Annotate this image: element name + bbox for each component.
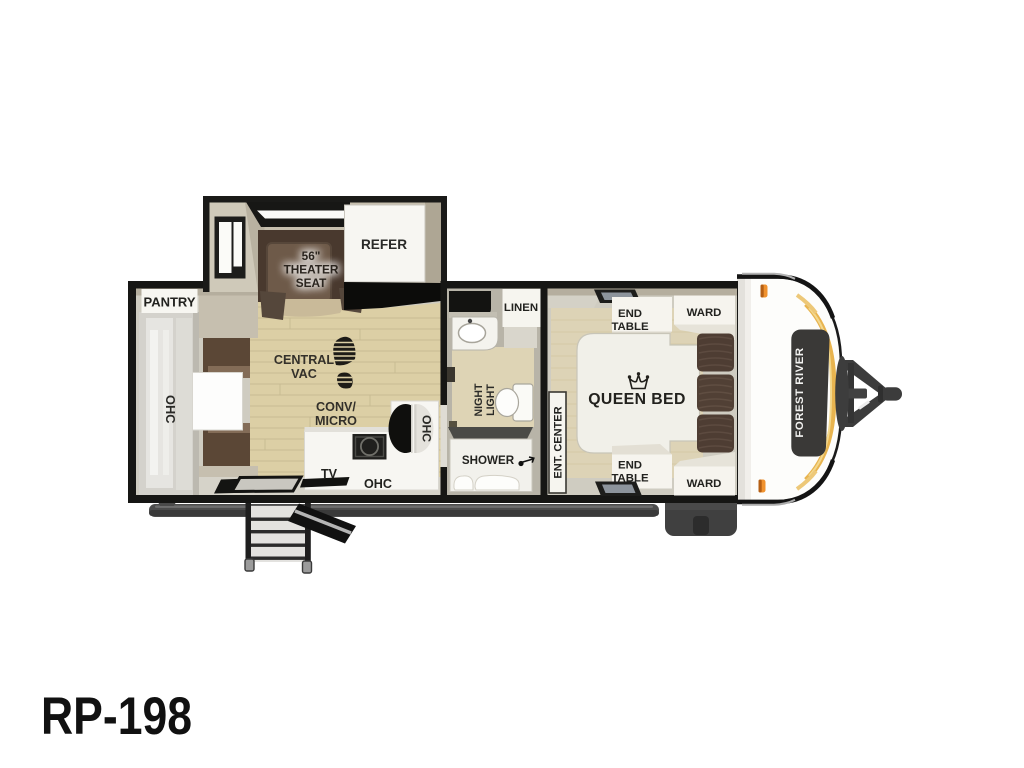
svg-text:SHOWER: SHOWER — [462, 454, 515, 467]
svg-text:TABLE: TABLE — [611, 321, 649, 333]
svg-text:QUEEN BED: QUEEN BED — [588, 391, 686, 408]
svg-text:PANTRY: PANTRY — [144, 295, 196, 310]
svg-text:THEATER: THEATER — [284, 263, 339, 277]
svg-text:OHC: OHC — [163, 395, 178, 423]
svg-text:WARD: WARD — [687, 307, 722, 319]
svg-text:RP-198: RP-198 — [41, 687, 192, 746]
svg-text:LINEN: LINEN — [504, 302, 538, 314]
svg-text:END: END — [618, 308, 642, 320]
svg-text:REFER: REFER — [361, 237, 407, 252]
svg-text:END: END — [618, 460, 642, 472]
svg-text:NIGHT: NIGHT — [473, 383, 485, 416]
svg-text:MICRO: MICRO — [315, 414, 357, 428]
svg-text:CENTRAL: CENTRAL — [274, 353, 334, 367]
svg-text:SEAT: SEAT — [296, 276, 327, 290]
svg-text:OHC: OHC — [420, 415, 434, 442]
svg-text:FOREST RIVER: FOREST RIVER — [794, 347, 806, 437]
svg-text:OHC: OHC — [364, 477, 392, 491]
svg-text:56": 56" — [302, 249, 321, 263]
svg-text:CONV/: CONV/ — [316, 400, 356, 414]
svg-text:WARD: WARD — [687, 478, 722, 490]
svg-text:ENT. CENTER: ENT. CENTER — [553, 406, 565, 478]
svg-text:VAC: VAC — [291, 367, 317, 381]
